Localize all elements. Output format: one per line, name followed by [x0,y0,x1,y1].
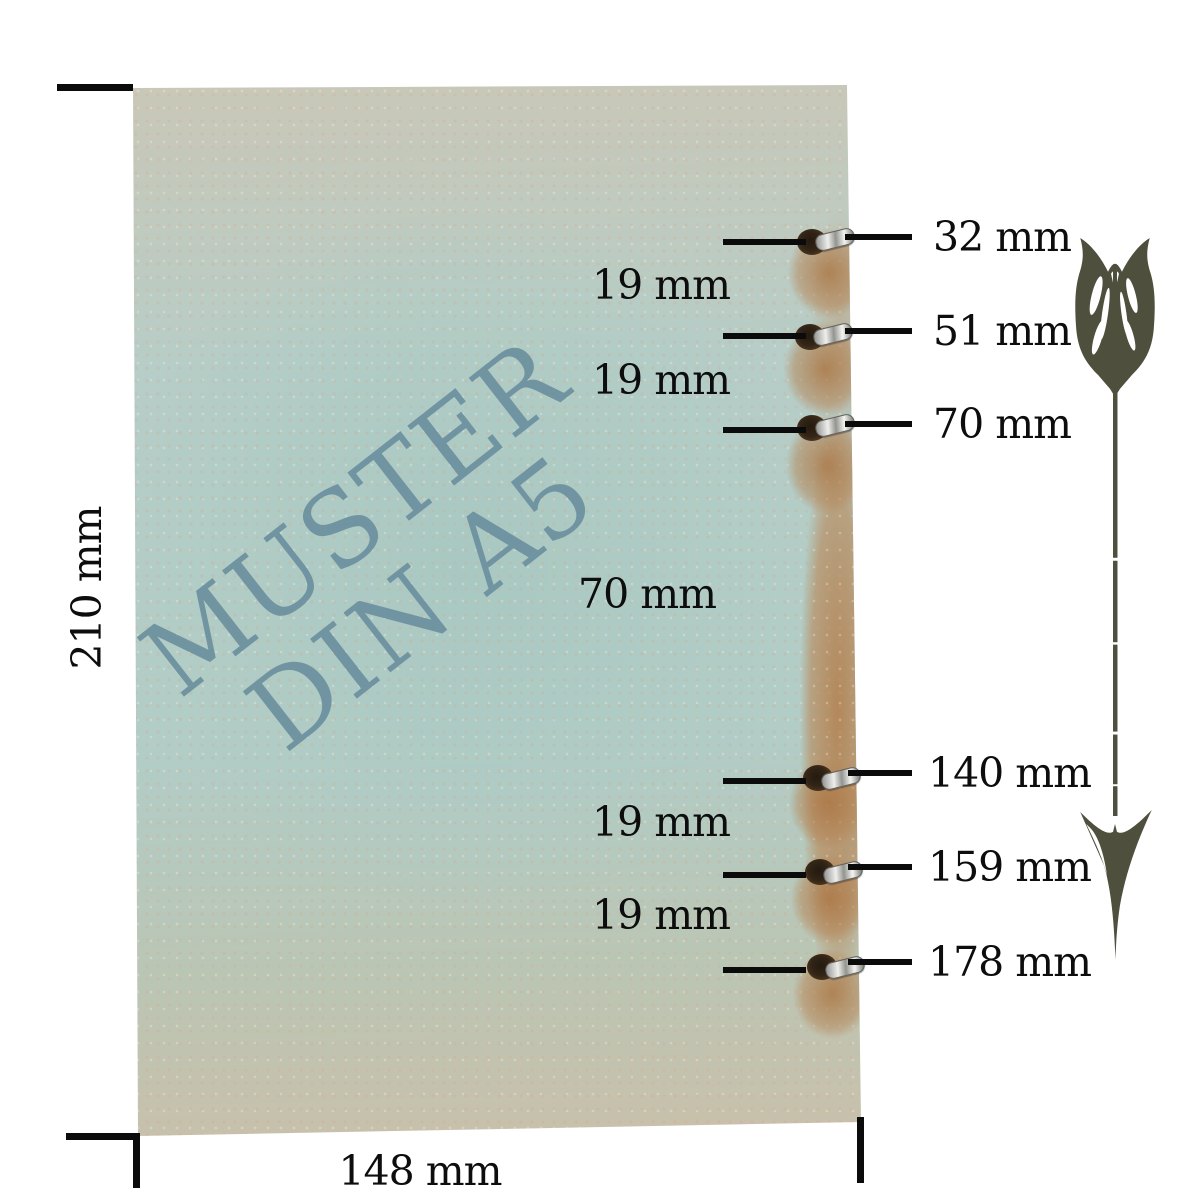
leader-line [848,959,912,965]
dimension-line [723,967,806,973]
label-hole-gap-1: 19 mm [592,260,730,310]
bracket-top-left [57,84,133,91]
leader-line [848,864,912,870]
dimension-line [723,333,806,339]
label-hole-position-4: 140 mm [928,748,1091,798]
bracket-bottom-left [66,1133,140,1140]
leader-line [845,421,912,427]
dimension-line [723,239,806,245]
label-hole-gap-4: 19 mm [592,797,730,847]
arrow-down-icon [1070,230,1160,965]
leader-line [845,328,912,334]
leader-line [848,770,912,776]
label-hole-position-2: 51 mm [933,306,1071,356]
label-hole-position-6: 178 mm [928,937,1091,987]
diagram-canvas: MUSTER DIN A5 32 mm 51 mm 70 mm 140 mm 1… [0,0,1200,1200]
leader-line [845,234,912,240]
label-hole-gap-2: 19 mm [592,355,730,405]
dimension-line [723,427,806,433]
label-hole-position-5: 159 mm [928,842,1091,892]
label-hole-position-1: 32 mm [933,212,1071,262]
label-page-height: 210 mm [62,493,112,683]
cover-title: MUSTER DIN A5 [109,309,668,812]
label-page-width: 148 mm [330,1146,510,1196]
worn-patch [779,933,885,1055]
dimension-line [723,778,806,784]
bracket-bottom-left-tick [133,1133,140,1188]
label-hole-gap-3: 70 mm [578,569,716,619]
bracket-bottom-right-tick [857,1117,864,1183]
label-hole-gap-5: 19 mm [592,890,730,940]
dimension-line [723,872,806,878]
label-hole-position-3: 70 mm [933,399,1071,449]
